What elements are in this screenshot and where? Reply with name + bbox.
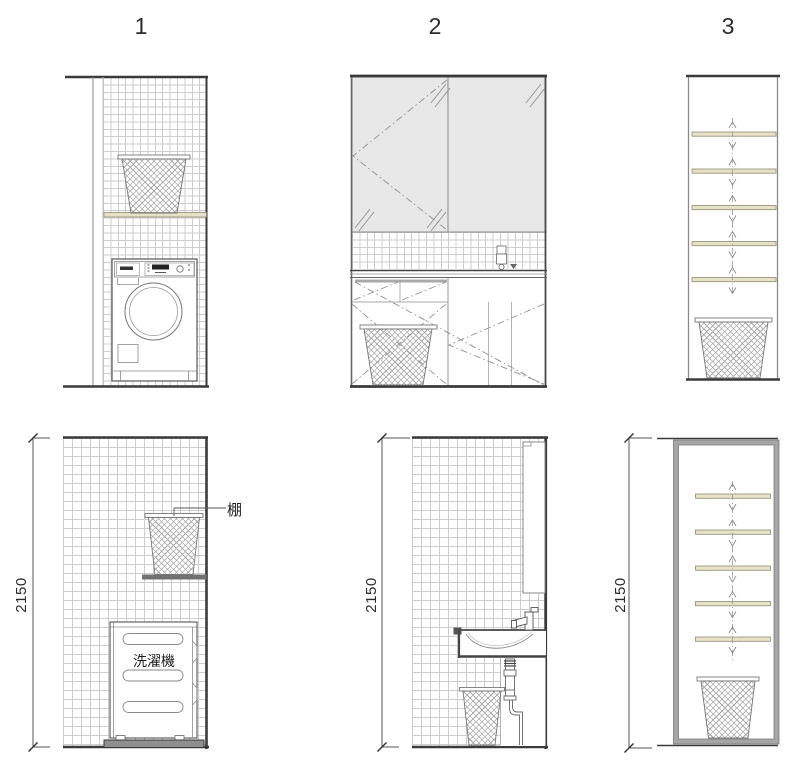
sink-counter-section [454, 628, 547, 659]
height-dimension-3: 2150 [612, 567, 628, 623]
view-number-2: 2 [424, 13, 446, 39]
soap-dispenser [497, 246, 518, 270]
elevation1-front-group [63, 77, 209, 387]
view-number-1: 1 [130, 13, 152, 39]
elevation2-front-group [350, 76, 547, 387]
faucet-side [512, 608, 539, 631]
drawer-front-edge [355, 280, 447, 283]
basket-rim [460, 688, 505, 692]
basket-rim [697, 677, 759, 681]
shelf-board-section [142, 575, 207, 580]
cabinet-frame [676, 443, 777, 742]
height-dimension-2: 2150 [363, 567, 379, 623]
elevation3-section-group [625, 434, 780, 753]
elevation-drawing-sheet: 1 2 3 2150 2150 2150 棚 洗濯機 [0, 0, 800, 768]
washing-machine-annotation: 洗濯機 [122, 651, 186, 671]
basket-rim [360, 325, 437, 329]
washing-machine-front [112, 259, 197, 381]
dimension-line [378, 434, 411, 752]
adjustable-shelves [696, 494, 771, 641]
elevation3-front-group [686, 76, 780, 380]
view-number-3: 3 [717, 13, 739, 39]
mirror-cabinet-side [523, 442, 545, 593]
washing-machine-side [104, 622, 204, 748]
height-dimension-1: 2150 [13, 567, 29, 623]
dimension-line [29, 434, 51, 752]
adjustable-shelves [692, 132, 776, 282]
elevation1-section-group [29, 434, 227, 752]
basket-rim [118, 155, 190, 159]
washer-base [104, 740, 204, 748]
shelf-annotation: 棚 [227, 499, 242, 520]
basket-rim [695, 318, 772, 322]
elevation2-section-group [378, 434, 549, 752]
drawing-linework [0, 0, 800, 768]
